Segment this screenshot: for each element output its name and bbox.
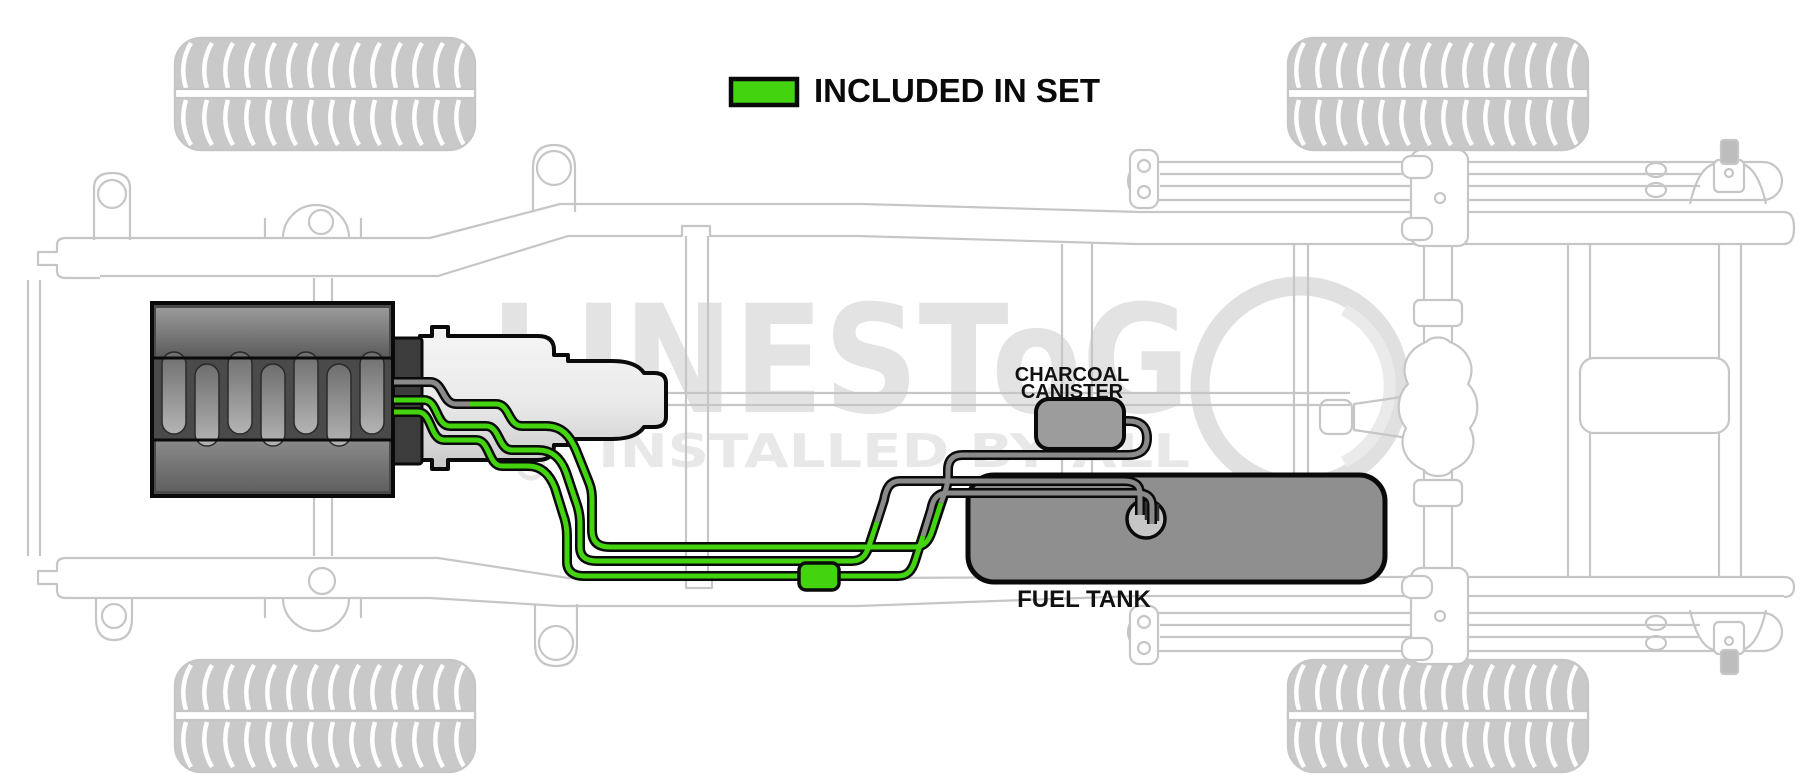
differential (1399, 338, 1478, 477)
body-mount-tab-top (533, 145, 575, 212)
watermark-ring-icon (1200, 286, 1400, 486)
frame-horn-bottom (38, 558, 100, 598)
legend-label: INCLUDED IN SET (814, 72, 1100, 109)
axle-coupler-top (1414, 300, 1462, 326)
front-wheel-left (175, 38, 475, 150)
fuel-line-diagram: LINESToG INSTALLED BY ALL (0, 0, 1800, 784)
front-crossbar (28, 280, 40, 556)
frame-rail-top (38, 204, 1794, 278)
legend: INCLUDED IN SET (731, 72, 1100, 109)
inline-line-fitting (799, 563, 839, 590)
frame-horn-top (38, 238, 100, 278)
body-mount-tab-bottom (535, 604, 577, 666)
front-mount-bracket-top (265, 205, 361, 238)
fuel-tank-label: FUEL TANK (1017, 586, 1151, 613)
leaf-spring-top (1128, 140, 1782, 246)
front-wheel-right (175, 660, 475, 772)
rear-wheel-right (1288, 660, 1588, 772)
front-mount-bracket-bottom (265, 568, 361, 631)
engine (152, 303, 393, 496)
rear-wheel-left (1288, 38, 1588, 150)
charcoal-canister-label-line2: CANISTER (1021, 381, 1124, 403)
legend-swatch (731, 79, 797, 105)
diagram-canvas: LINESToG INSTALLED BY ALL (0, 0, 1800, 784)
tow-tab-bottom (96, 598, 132, 640)
tow-tab-top (94, 173, 130, 240)
rear-crossmember-plate (1580, 358, 1729, 433)
charcoal-canister (1036, 399, 1124, 449)
axle-coupler-bottom (1414, 480, 1462, 506)
